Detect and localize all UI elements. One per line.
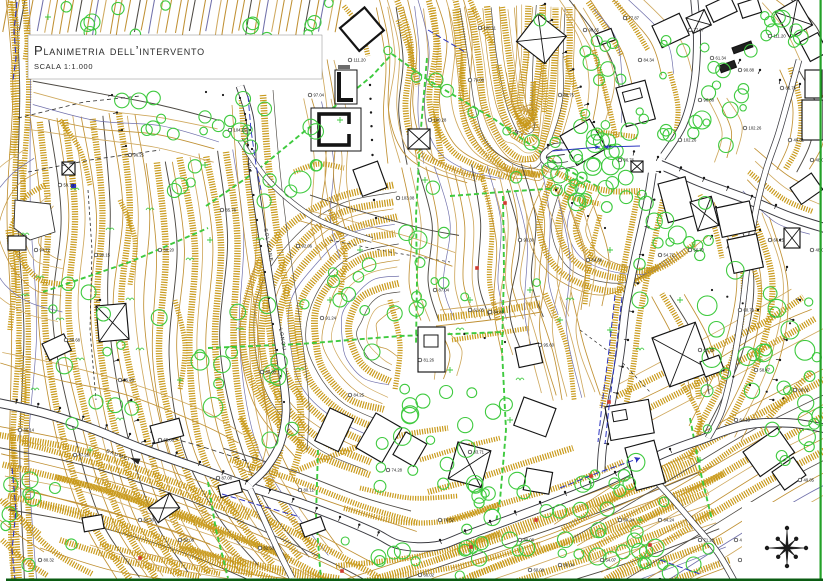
svg-text:77.97: 77.97	[694, 28, 705, 33]
svg-text:SCALA 1:1.000: SCALA 1:1.000	[34, 62, 93, 71]
svg-text:60.79: 60.79	[744, 308, 755, 313]
svg-text:60.25: 60.25	[704, 348, 715, 353]
svg-text:60.25: 60.25	[774, 238, 785, 243]
svg-text:97.04: 97.04	[314, 93, 325, 98]
svg-text:92.06: 92.06	[302, 244, 313, 249]
svg-text:66.75: 66.75	[786, 86, 797, 91]
svg-text:54.72: 54.72	[664, 253, 675, 258]
svg-text:111.20: 111.20	[774, 34, 787, 39]
svg-text:62.30: 62.30	[144, 518, 155, 523]
svg-text:48.05: 48.05	[816, 248, 823, 253]
svg-text:96.88: 96.88	[704, 98, 715, 103]
svg-text:84.36: 84.36	[592, 258, 603, 263]
svg-text:76.52: 76.52	[444, 518, 455, 523]
svg-text:60.08: 60.08	[534, 568, 545, 573]
svg-text:82.08: 82.08	[184, 538, 195, 543]
svg-text:58.47: 58.47	[760, 368, 771, 373]
svg-text:94.72: 94.72	[40, 248, 51, 253]
svg-text:64.25: 64.25	[740, 418, 751, 423]
svg-text:60.02: 60.02	[424, 573, 435, 578]
svg-text:90.15: 90.15	[100, 253, 111, 258]
svg-text:88.68: 88.68	[70, 338, 81, 343]
svg-text:91.24: 91.24	[326, 316, 337, 321]
svg-text:48.01: 48.01	[816, 158, 823, 163]
svg-text:86.76: 86.76	[624, 158, 635, 163]
svg-text:87.08: 87.08	[222, 476, 233, 481]
svg-text:84.24: 84.24	[624, 518, 635, 523]
svg-text:96.25: 96.25	[134, 153, 145, 158]
svg-text:79.08: 79.08	[474, 78, 485, 83]
svg-text:81.26: 81.26	[424, 358, 435, 363]
svg-text:80.60: 80.60	[266, 370, 277, 375]
svg-text:84.48: 84.48	[494, 310, 505, 315]
svg-text:61.05: 61.05	[474, 308, 485, 313]
svg-text:111.20: 111.20	[354, 58, 367, 63]
svg-text:87.04: 87.04	[439, 288, 450, 293]
svg-text:77.87: 77.87	[629, 16, 640, 21]
svg-text:80.08: 80.08	[524, 538, 535, 543]
svg-text:83.71: 83.71	[474, 450, 485, 455]
svg-text:86.14: 86.14	[24, 428, 35, 433]
svg-text:87.28: 87.28	[79, 453, 90, 458]
svg-text:56.70: 56.70	[694, 248, 705, 253]
svg-text:90.88: 90.88	[744, 68, 755, 73]
svg-text:54.07: 54.07	[606, 558, 617, 563]
svg-text:100.11: 100.11	[484, 26, 497, 31]
svg-text:49.81: 49.81	[794, 138, 805, 143]
svg-text:58.01: 58.01	[799, 388, 810, 393]
svg-text:80.32: 80.32	[44, 558, 55, 563]
svg-text:88.20: 88.20	[164, 248, 175, 253]
svg-text:Planimetria dell’intervento: Planimetria dell’intervento	[34, 43, 205, 58]
svg-text:102.26: 102.26	[749, 126, 762, 131]
svg-text:95.60: 95.60	[544, 343, 555, 348]
svg-text:80.04: 80.04	[564, 563, 575, 568]
svg-text:84.25: 84.25	[354, 393, 365, 398]
svg-text:102.26: 102.26	[684, 138, 697, 143]
svg-text:49.85: 49.85	[804, 478, 815, 483]
svg-text:65.20: 65.20	[124, 378, 135, 383]
svg-text:103.08: 103.08	[402, 196, 415, 201]
svg-text:65.08: 65.08	[164, 438, 175, 443]
svg-text:64.24: 64.24	[664, 518, 675, 523]
svg-text:88.75: 88.75	[564, 93, 575, 98]
svg-text:71.28: 71.28	[704, 538, 715, 543]
svg-text:100.28: 100.28	[434, 118, 447, 123]
svg-text:104.25: 104.25	[234, 128, 247, 133]
svg-text:93.30: 93.30	[524, 238, 535, 243]
svg-text:59.73: 59.73	[64, 183, 75, 188]
svg-text:74.28: 74.28	[392, 468, 403, 473]
svg-text:84.34: 84.34	[644, 58, 655, 63]
svg-text:90.65: 90.65	[589, 28, 600, 33]
svg-text:85.76: 85.76	[226, 208, 237, 213]
svg-text:80.12: 80.12	[304, 488, 315, 493]
svg-text:61.34: 61.34	[716, 56, 727, 61]
svg-text:62.58: 62.58	[264, 546, 275, 551]
